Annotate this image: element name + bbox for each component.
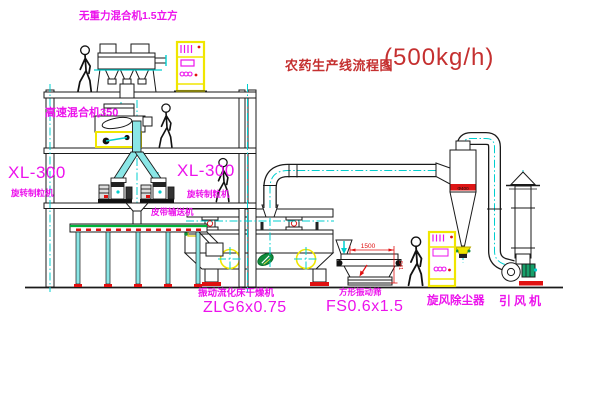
drawing-title: 农药生产线流程图 <box>285 55 393 74</box>
control-cabinet-upper <box>174 42 207 91</box>
exhaust-stack <box>506 172 540 258</box>
mixer-discharge-spout <box>120 84 134 98</box>
label-dryer-name: 振动流化床干燥机 <box>198 289 274 299</box>
person-figure <box>409 237 423 285</box>
label-granulator-right-model: XL-300 <box>177 162 235 179</box>
dim-screen-length: 1500 <box>361 243 376 250</box>
label-belt-conveyor: 皮带输送机 <box>151 208 194 217</box>
label-screen-model: FS0.6x1.5 <box>326 299 403 315</box>
control-cabinet-lower <box>429 232 455 286</box>
cyclone-diameter-text: Φ400 <box>457 186 469 191</box>
granulator-left <box>98 183 132 203</box>
label-dryer-model: ZLG6x0.75 <box>203 300 287 316</box>
dryer-exhaust-pipe <box>263 164 438 208</box>
label-granulator-left-model: XL-300 <box>8 164 66 181</box>
person-figure <box>78 46 91 91</box>
label-high-speed-mixer: 高速混合机350 <box>45 108 118 119</box>
granulator-right <box>140 183 174 203</box>
label-gravity-mixer: 无重力混合机1.5立方 <box>79 11 178 22</box>
drawing-title-capacity: (500kg/h) <box>384 44 494 72</box>
label-granulator-right-name: 旋转制粒机 <box>187 190 230 199</box>
label-cyclone: 旋风除尘器 <box>427 296 485 308</box>
dim-screen-height: 541 <box>397 261 403 270</box>
person-figure <box>159 104 172 147</box>
label-fan: 引风机 <box>499 295 544 307</box>
label-granulator-left-name: 旋转制粒机 <box>11 189 54 198</box>
dryer-port-right <box>286 217 302 230</box>
cad-process-flow-sheet: 1500 541 Φ400 <box>0 0 600 403</box>
gravity-mixer <box>94 44 166 98</box>
label-screen-name: 方形振动筛 <box>339 288 382 297</box>
